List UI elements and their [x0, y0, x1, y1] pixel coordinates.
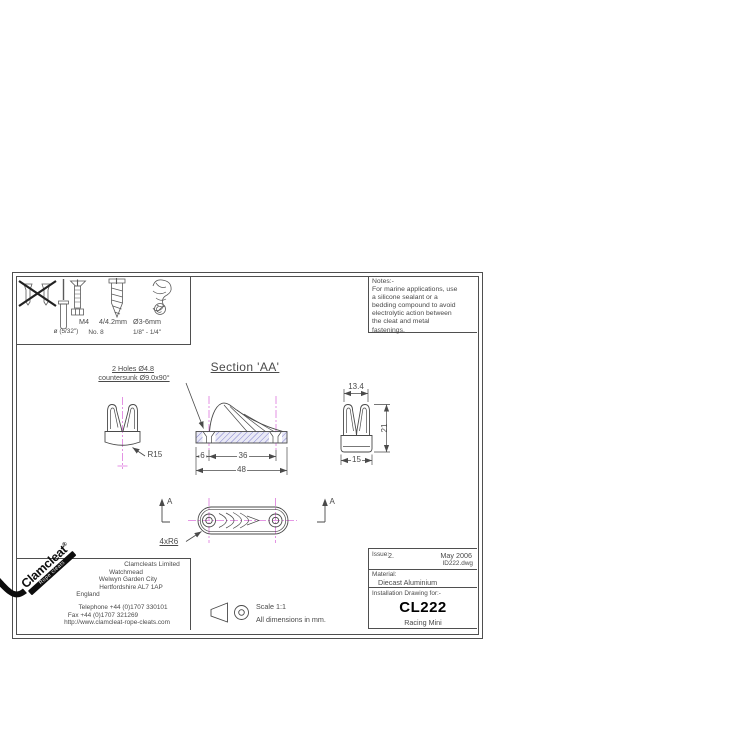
material-value: Diecast Aluminium [378, 579, 437, 586]
radius-label: R15 [146, 451, 164, 459]
issue-value: 2. [388, 552, 394, 559]
company-address-line: Watchmead [109, 570, 143, 576]
dim-6: 6 [199, 452, 206, 460]
notes-title: Notes:- [372, 278, 474, 286]
scale-label: Scale 1:1 [256, 603, 286, 610]
dim-48: 48 [236, 466, 248, 474]
title-block-issue-row: Issue: 2. May 2006 ID222.dwg [369, 549, 477, 570]
company-address-line: Hertfordshire AL7 1AP [99, 585, 163, 591]
title-block: Issue: 2. May 2006 ID222.dwg Material: D… [368, 548, 477, 629]
product-name: Racing Mini [404, 619, 442, 626]
fastener-rivet-size-label: ø (5/32") [54, 329, 79, 335]
units-label: All dimensions in mm. [256, 616, 326, 623]
fastener-rope-imperial-label: 1/8" - 1/4" [133, 330, 161, 336]
notes-line: For marine applications, use [372, 286, 474, 294]
drawing-for-label: Installation Drawing for:- [372, 591, 441, 597]
notes-line: bedding compound to avoid [372, 302, 474, 310]
company-address-line: England [76, 592, 99, 598]
notes-line: a silicone sealant or a [372, 294, 474, 302]
section-title: Section 'AA' [211, 361, 280, 373]
ribs-label: 4xR6 [158, 538, 180, 546]
company-fax: Fax +44 (0)1707 321269 [68, 613, 138, 619]
section-letter-right: A [328, 498, 336, 506]
issue-label: Issue: [372, 552, 389, 558]
drawing-sheet-page: M4 4/4.2mm Ø3-6mm ø (5/32") No. 8 1/8" -… [0, 0, 755, 755]
product-code: CL222 [399, 600, 447, 615]
section-letter-left: A [166, 498, 174, 506]
fastener-rope-metric-label: Ø3-6mm [133, 318, 161, 325]
company-url: http://www.clamcleat-rope-cleats.com [64, 620, 170, 626]
address-block: Clamcleat® Rope cleats Clamcleats Limite… [16, 558, 191, 630]
notes-box: Notes:- For marine applications, use a s… [368, 276, 477, 333]
issue-date: May 2006 [440, 552, 472, 559]
company-telephone: Telephone +44 (0)1707 330101 [78, 605, 167, 611]
drawing-file-name: ID222.dwg [442, 561, 473, 567]
holes-note-line1: 2 Holes Ø4.8 [112, 365, 154, 372]
notes-line: electrolytic action between [372, 310, 474, 318]
notes-line: fastenings. [372, 327, 474, 335]
holes-note-line2: countersunk Ø9.0x90° [98, 374, 169, 381]
dim-21: 21 [381, 422, 389, 434]
dim-15: 15 [351, 456, 363, 464]
fastener-m4-label: M4 [79, 318, 89, 325]
dim-13-4: 13.4 [347, 383, 366, 391]
fastener-box: M4 4/4.2mm Ø3-6mm ø (5/32") No. 8 1/8" -… [16, 276, 191, 345]
title-block-product-row: Installation Drawing for:- CL222 Racing … [369, 588, 477, 630]
title-block-material-row: Material: Diecast Aluminium [369, 570, 477, 588]
notes-line: the cleat and metal [372, 318, 474, 326]
fastener-wood-metric-label: 4/4.2mm [99, 318, 127, 325]
dim-36: 36 [237, 452, 249, 460]
material-label: Material: [372, 572, 397, 578]
company-address-line: Welwyn Garden City [99, 577, 157, 583]
fastener-wood-gauge-label: No. 8 [88, 330, 103, 336]
